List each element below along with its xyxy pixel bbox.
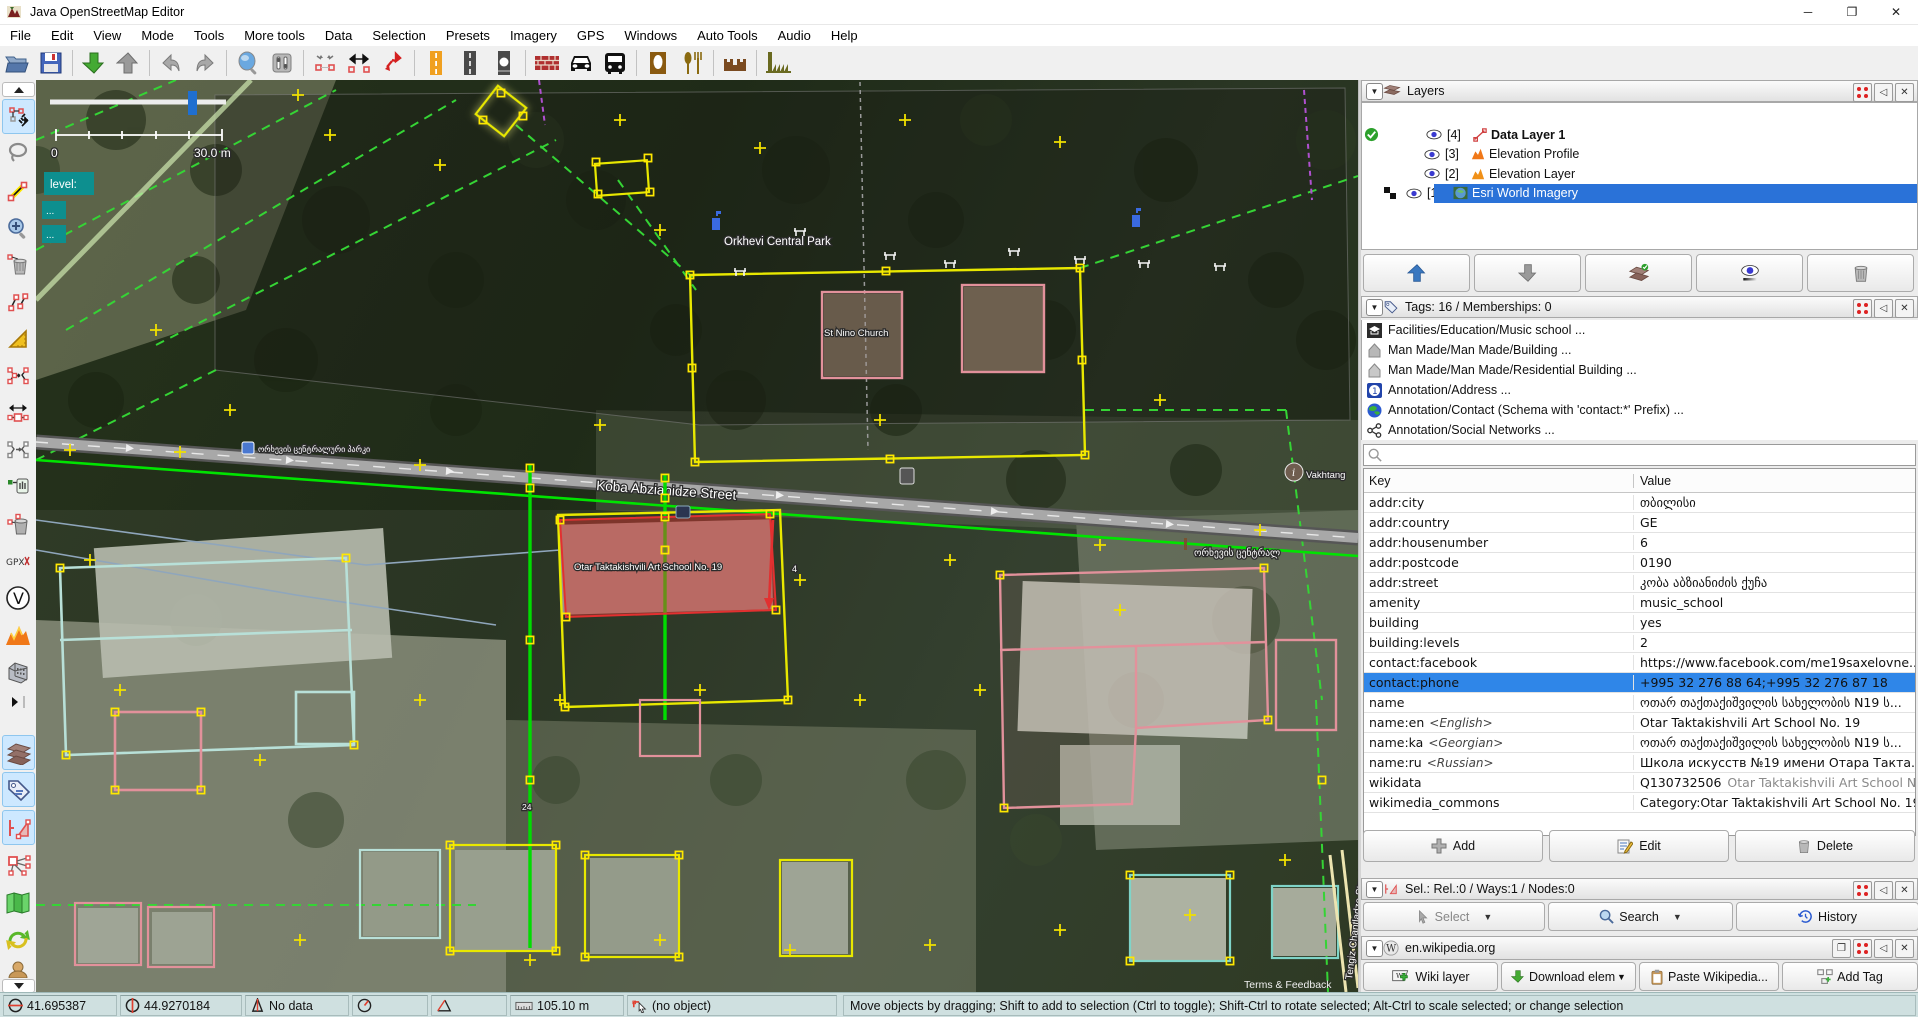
latitude-icon [8, 998, 23, 1013]
josm-window: Java OpenStreetMap Editor ─ ❐ ✕ File Edi… [0, 0, 1918, 1017]
wikipedia-panel-header: ▼ W en.wikipedia.org ❐ ◁ ✕ [1361, 936, 1918, 960]
church-label: St Nino Church [824, 328, 888, 339]
car-button[interactable] [565, 48, 597, 78]
restaurant-icon [680, 50, 704, 76]
menu-presets[interactable]: Presets [436, 28, 500, 43]
grab-node-tool-button[interactable] [2, 470, 33, 503]
open-button[interactable] [1, 48, 33, 78]
preset-links: Facilities/Education/Music school ... Ma… [1361, 320, 1918, 440]
layers-panel-header: ▼ Layers ◁ ✕ [1361, 80, 1918, 102]
upload-button[interactable] [112, 48, 144, 78]
svg-text:...: ... [46, 206, 54, 217]
more-tools-dropdown[interactable] [2, 979, 35, 993]
tag-icon [6, 778, 32, 802]
layer-row-esri[interactable]: [1] Esri World Imagery [1362, 184, 1917, 204]
tag-row[interactable]: contact:facebookhttps://www.facebook.com… [1364, 653, 1915, 673]
minimize-panel-icon[interactable]: ◁ [1874, 939, 1893, 958]
window-panel-icon[interactable]: ❐ [1832, 939, 1851, 958]
plus-icon [1431, 838, 1447, 854]
menu-bar: File Edit View Mode Tools More tools Dat… [0, 25, 1918, 47]
park-label: Orkhevi Central Park [724, 236, 831, 248]
longitude-field: 44.9270184 [120, 995, 242, 1016]
share-icon [1366, 422, 1382, 438]
heading-field: No data [245, 995, 349, 1016]
delete-tag-button[interactable]: Delete [1735, 830, 1915, 862]
unglue-icon [6, 290, 30, 314]
menu-mode[interactable]: Mode [131, 28, 184, 43]
download-button[interactable] [78, 48, 110, 78]
gpx-tool-button[interactable]: GPX [2, 544, 33, 577]
preferences-icon [270, 51, 294, 75]
visibility-eye-icon[interactable] [1424, 149, 1440, 160]
tag-row[interactable]: amenitymusic_school [1364, 593, 1915, 613]
layer-delete-button[interactable] [1807, 254, 1914, 292]
svg-text:...: ... [46, 230, 54, 241]
globe-icon [236, 51, 260, 75]
window-title: Java OpenStreetMap Editor [30, 5, 184, 19]
layers-icon [6, 741, 32, 765]
sync-arrows-icon [5, 928, 31, 952]
selection-panel-title: Sel.: Rel.:0 / Ways:1 / Nodes:0 [1405, 882, 1575, 896]
minimize-button[interactable]: ─ [1786, 0, 1830, 24]
svg-text:i: i [1292, 468, 1295, 479]
merge-nodes-button[interactable] [309, 48, 341, 78]
move-tool-button[interactable] [2, 99, 35, 134]
zoom-tool-button[interactable] [2, 211, 33, 244]
wiki-paste-button[interactable]: Paste Wikipedia... [1639, 962, 1779, 991]
wiki-download-button[interactable]: Download elem▼ [1501, 962, 1636, 991]
layer-down-button[interactable] [1474, 254, 1581, 292]
grab-node-icon [6, 475, 30, 499]
add-tag-icon [1817, 969, 1833, 985]
tag-row[interactable]: addr:housenumber6 [1364, 533, 1915, 553]
svg-text:ორხევის ცენტრალური პარკი: ორხევის ცენტრალური პარკი [258, 444, 370, 454]
gpx-icon: GPX [5, 553, 31, 569]
opacity-eye-icon [1739, 263, 1761, 283]
layer-row-elevation-layer[interactable]: [2] Elevation Layer [1362, 164, 1917, 184]
save-icon [39, 51, 63, 75]
globe-icon [1366, 402, 1382, 418]
redo-icon [193, 51, 217, 75]
active-check-icon[interactable] [1364, 127, 1379, 142]
tag-row-selected[interactable]: contact:phone+995 32 276 88 64;+995 32 2… [1364, 673, 1915, 693]
maximize-button[interactable]: ❐ [1830, 0, 1874, 24]
svg-text:0: 0 [51, 146, 58, 160]
menu-selection[interactable]: Selection [362, 28, 435, 43]
redo-button[interactable] [189, 48, 221, 78]
data-layer-icon [1473, 128, 1487, 142]
layer-name: Esri World Imagery [1472, 186, 1578, 200]
layer-opacity-button[interactable] [1696, 254, 1803, 292]
validator-tool-button[interactable]: V [2, 581, 33, 614]
tags-panel-header: ▼ Tags: 16 / Memberships: 0 ◁ ✕ [1361, 296, 1918, 318]
bearing-icon [357, 998, 372, 1013]
close-panel-icon[interactable]: ✕ [1895, 83, 1914, 102]
object-field: (no object) [627, 995, 837, 1016]
layers-panel-title: Layers [1407, 84, 1445, 98]
status-help-text: Move objects by dragging; Shift to add t… [843, 995, 1916, 1016]
save-button[interactable] [35, 48, 67, 78]
bus-button[interactable] [599, 48, 631, 78]
relations-icon [5, 853, 31, 877]
imagery-layer-icon [1453, 186, 1468, 200]
relations-dialog-button[interactable] [2, 848, 33, 881]
school-label: Otar Taktakishvili Art School No. 19 [574, 562, 722, 573]
selection-actions: Select▼ Search▼ History [1363, 902, 1918, 931]
object-pointer-icon [632, 998, 648, 1013]
native-scale-icon [1384, 187, 1396, 199]
expand-arrow-icon [8, 696, 28, 708]
draw-node-icon [6, 179, 30, 203]
tag-row[interactable]: addr:postcode0190 [1364, 553, 1915, 573]
menu-more-tools[interactable]: More tools [234, 28, 315, 43]
combine-way-button[interactable] [343, 48, 375, 78]
clipboard-icon [1650, 969, 1664, 985]
menu-file[interactable]: File [0, 28, 41, 43]
building-tool-button[interactable] [2, 655, 33, 688]
collapse-icon[interactable]: ▼ [1366, 881, 1383, 898]
title-bar: Java OpenStreetMap Editor ─ ❐ ✕ [0, 0, 1918, 25]
menu-edit[interactable]: Edit [41, 28, 83, 43]
elevation-icon [1471, 147, 1485, 161]
map-canvas[interactable]: Koba Abzianidze Street St Nino Church [36, 80, 1358, 992]
elevation-tool-button[interactable] [2, 618, 33, 651]
delete-tool-button[interactable] [2, 248, 33, 281]
detach-icon[interactable] [1853, 939, 1872, 958]
crossing-icon [494, 50, 514, 76]
preset-address[interactable]: 1Annotation/Address ... [1362, 380, 1918, 400]
zoom-download-button[interactable] [232, 48, 264, 78]
menu-audio[interactable]: Audio [768, 28, 821, 43]
info-marker[interactable]: i [1285, 463, 1303, 481]
close-panel-icon[interactable]: ✕ [1895, 939, 1914, 958]
svg-text:30.0 m: 30.0 m [194, 146, 231, 160]
ruler-icon [515, 1000, 533, 1012]
collapse-icon[interactable]: ▼ [1366, 83, 1383, 100]
tag-row[interactable]: nameოთარ თაქთაქიშვილის სახელობის N19 ს..… [1364, 693, 1915, 713]
menu-windows[interactable]: Windows [614, 28, 687, 43]
history-clock-icon [1798, 909, 1813, 924]
menu-gps[interactable]: GPS [567, 28, 614, 43]
collapse-toolbar-button[interactable] [2, 82, 35, 97]
car-icon [567, 51, 595, 75]
selection-panel-header: ▼ Sel.: Rel.:0 / Ways:1 / Nodes:0 ◁ ✕ [1361, 878, 1918, 900]
tag-row[interactable]: addr:cityთბილისი [1364, 493, 1915, 513]
layer-merge-button[interactable] [1585, 254, 1692, 292]
castle-icon [721, 51, 749, 75]
layers-icon [1383, 84, 1401, 98]
svg-text:GPX: GPX [6, 558, 25, 568]
angle-ruler-icon [6, 327, 30, 351]
layer-up-button[interactable] [1363, 254, 1470, 292]
minimize-panel-icon[interactable]: ◁ [1874, 299, 1893, 318]
longitude-icon [125, 998, 140, 1013]
layers-list: [4] Data Layer 1 [3] Elevation Profile [… [1361, 102, 1918, 250]
menu-help[interactable]: Help [821, 28, 868, 43]
zoom-plus-icon [6, 216, 30, 240]
tag-row[interactable]: name:ru<Russian>Школа искусств №19 имени… [1364, 753, 1915, 773]
history-button[interactable]: History [1736, 902, 1918, 931]
follow-line-tool-button[interactable] [2, 433, 33, 466]
elevation-icon [1471, 167, 1485, 181]
wikipedia-icon: W [1383, 940, 1399, 956]
trash-icon [1797, 838, 1811, 854]
preset-contact[interactable]: Annotation/Contact (Schema with 'contact… [1362, 400, 1918, 420]
svg-text:W: W [1386, 944, 1397, 955]
delete-node-tool-button[interactable] [2, 507, 33, 540]
heading-icon [250, 998, 265, 1013]
josm-logo-icon [6, 4, 22, 20]
layer-name: Elevation Layer [1489, 167, 1575, 181]
visibility-eye-icon[interactable] [1406, 188, 1422, 199]
menu-imagery[interactable]: Imagery [500, 28, 567, 43]
tag-actions: Add Edit Delete [1363, 830, 1915, 862]
move-icon [7, 105, 31, 129]
merge-ways-icon [6, 364, 30, 388]
preset-building[interactable]: Man Made/Man Made/Building ... [1362, 340, 1918, 360]
bearing-field [352, 995, 428, 1016]
close-panel-icon[interactable]: ✕ [1895, 299, 1914, 318]
detach-icon[interactable] [1853, 299, 1872, 318]
preferences-button[interactable] [266, 48, 298, 78]
close-panel-icon[interactable]: ✕ [1895, 881, 1914, 900]
tags-dialog-button[interactable] [2, 772, 35, 807]
reverse-way-button[interactable] [377, 48, 409, 78]
user-icon [7, 960, 29, 978]
lasso-tool-button[interactable] [2, 136, 33, 169]
menu-auto-tools[interactable]: Auto Tools [687, 28, 767, 43]
unglue-tool-button[interactable] [2, 285, 33, 318]
merge-ways-tool-button[interactable] [2, 359, 33, 392]
delete-node-icon [6, 512, 30, 536]
tag-row[interactable]: addr:countryGE [1364, 513, 1915, 533]
add-tag-button[interactable]: Add [1363, 830, 1543, 862]
select-button[interactable]: Select▼ [1363, 902, 1545, 931]
edit-icon [1617, 838, 1633, 854]
layers-dialog-button[interactable] [2, 735, 35, 770]
house-icon [1366, 342, 1382, 358]
menu-view[interactable]: View [83, 28, 131, 43]
visibility-eye-icon[interactable] [1424, 168, 1440, 179]
angle-field [431, 995, 507, 1016]
edit-tool-column: GPX V [0, 80, 37, 992]
crossing-button[interactable] [488, 48, 520, 78]
tag-filter [1363, 444, 1916, 466]
menu-data[interactable]: Data [315, 28, 362, 43]
minimize-panel-icon[interactable]: ◁ [1874, 881, 1893, 900]
extrude-icon [6, 401, 30, 425]
building-icon [5, 660, 31, 684]
motorway-icon [426, 50, 446, 76]
monument-button[interactable] [642, 48, 674, 78]
brick-wall-icon [534, 52, 560, 74]
angle-icon [436, 998, 452, 1013]
status-bar: 41.695387 44.9270184 No data 105.10 m (n… [0, 992, 1918, 1017]
combine-way-icon [346, 51, 372, 75]
works-icon [764, 50, 792, 76]
down-arrow-icon [1518, 263, 1538, 283]
layer-name: Data Layer 1 [1491, 128, 1565, 142]
vakhtang-label: Vakhtang [1306, 470, 1345, 481]
house24-label: 24 [522, 802, 532, 812]
preset-residential-building[interactable]: Man Made/Man Made/Residential Building .… [1362, 360, 1918, 380]
tag-row[interactable]: name:en<English>Otar Taktakishvili Art S… [1364, 713, 1915, 733]
synchronize-button[interactable] [2, 923, 33, 956]
restaurant-button[interactable] [676, 48, 708, 78]
tag-icon [1383, 300, 1399, 314]
layer-row-data[interactable]: [4] Data Layer 1 [1362, 125, 1917, 145]
angle-ruler-tool-button[interactable] [2, 322, 33, 355]
collapse-icon[interactable]: ▼ [1366, 940, 1383, 957]
selection-icon [1383, 882, 1399, 896]
bus-icon [602, 51, 628, 75]
selection-icon [6, 816, 32, 840]
merge-layers-icon [1628, 263, 1650, 283]
menu-tools[interactable]: Tools [184, 28, 234, 43]
download-arrow-icon [82, 51, 106, 75]
svg-text:1: 1 [1372, 387, 1378, 397]
wiki-layer-icon: W [1391, 969, 1411, 984]
edit-tag-button[interactable]: Edit [1549, 830, 1729, 862]
tag-row[interactable]: buildingyes [1364, 613, 1915, 633]
wiki-layer-button[interactable]: W Wiki layer [1363, 962, 1498, 991]
school-icon [1366, 322, 1382, 338]
castle-button[interactable] [719, 48, 751, 78]
elevation-icon [5, 623, 31, 647]
tag-table: KeyValue addr:cityთბილისი addr:countryGE… [1363, 468, 1916, 836]
road-button[interactable] [454, 48, 486, 78]
expand-tools-button[interactable] [2, 692, 33, 712]
preset-social[interactable]: Annotation/Social Networks ... [1362, 420, 1918, 440]
layer-actions [1363, 254, 1914, 292]
visibility-eye-icon[interactable] [1426, 129, 1442, 140]
selection-dialog-button[interactable] [2, 810, 35, 845]
tag-row[interactable]: addr:streetკობა აბზიანიძის ქუჩა [1364, 573, 1915, 593]
park-small-label: ორხევის ცენტრალური პარკი [242, 442, 370, 454]
works-button[interactable] [762, 48, 794, 78]
tag-row[interactable]: wikimedia_commonsCategory:Otar Taktakish… [1364, 793, 1915, 813]
trash-node-icon [6, 253, 30, 277]
search-icon [1368, 448, 1382, 462]
map-icon [5, 891, 31, 915]
extrude-tool-button[interactable] [2, 396, 33, 429]
layer-name: Elevation Profile [1489, 147, 1579, 161]
wall-button[interactable] [531, 48, 563, 78]
merge-nodes-icon [312, 51, 338, 75]
tag-row[interactable]: building:levels2 [1364, 633, 1915, 653]
search-button[interactable]: Search▼ [1548, 902, 1733, 931]
terms-label[interactable]: Terms & Feedback [1244, 979, 1332, 991]
wikipedia-panel-title: en.wikipedia.org [1405, 941, 1495, 955]
lasso-icon [6, 141, 30, 165]
tag-filter-input[interactable] [1386, 446, 1915, 464]
open-folder-icon [4, 51, 30, 75]
preset-music-school[interactable]: Facilities/Education/Music school ... [1362, 320, 1918, 340]
detach-icon[interactable] [1853, 881, 1872, 900]
house-icon [1366, 362, 1382, 378]
detach-icon[interactable] [1853, 83, 1872, 102]
collapse-icon[interactable]: ▼ [1366, 299, 1383, 316]
distance-field: 105.10 m [510, 995, 624, 1016]
road-icon [460, 50, 480, 76]
tag-row[interactable]: name:ka<Georgian>ოთარ თაქთაქიშვილის სახე… [1364, 733, 1915, 753]
svg-text:level:: level: [50, 179, 77, 191]
undo-icon [159, 51, 183, 75]
download-arrow-icon [1511, 969, 1525, 984]
tags-panel-title: Tags: 16 / Memberships: 0 [1405, 300, 1552, 314]
trash-icon [1852, 263, 1870, 283]
minimap-dialog-button[interactable] [2, 886, 33, 919]
cursor-icon [1416, 910, 1430, 924]
housenumber-label: 4 [792, 564, 797, 574]
latitude-field: 41.695387 [3, 995, 117, 1016]
up-arrow-icon [1407, 263, 1427, 283]
minimize-panel-icon[interactable]: ◁ [1874, 83, 1893, 102]
tag-row[interactable]: wikidataQ130732506Otar Taktakishvili Art… [1364, 773, 1915, 793]
draw-node-tool-button[interactable] [2, 174, 33, 207]
user-dialog-button[interactable] [2, 960, 33, 978]
follow-line-icon [6, 438, 30, 462]
svg-text:V: V [13, 589, 24, 608]
wikipedia-actions: W Wiki layer Download elem▼ Paste Wikipe… [1363, 962, 1918, 991]
wiki-add-tag-button[interactable]: Add Tag [1782, 962, 1918, 991]
validator-v-icon: V [5, 585, 31, 611]
motorway-button[interactable] [420, 48, 452, 78]
layer-row-elevation-profile[interactable]: [3] Elevation Profile [1362, 145, 1917, 165]
dialogs-panel: ▼ Layers ◁ ✕ [4] Data Layer 1 [3] [1361, 80, 1918, 992]
tag-table-header: KeyValue [1364, 469, 1915, 493]
upload-arrow-icon [116, 51, 140, 75]
search-icon [1599, 909, 1614, 924]
undo-button[interactable] [155, 48, 187, 78]
reverse-way-icon [381, 51, 405, 75]
address-icon: 1 [1366, 382, 1382, 398]
monument-icon [646, 50, 670, 76]
park-georgian-label: ორხევის ცენტრალ [1194, 548, 1280, 559]
park-area-overlay [215, 88, 1350, 425]
main-toolbar [0, 46, 1918, 81]
close-button[interactable]: ✕ [1874, 0, 1918, 24]
